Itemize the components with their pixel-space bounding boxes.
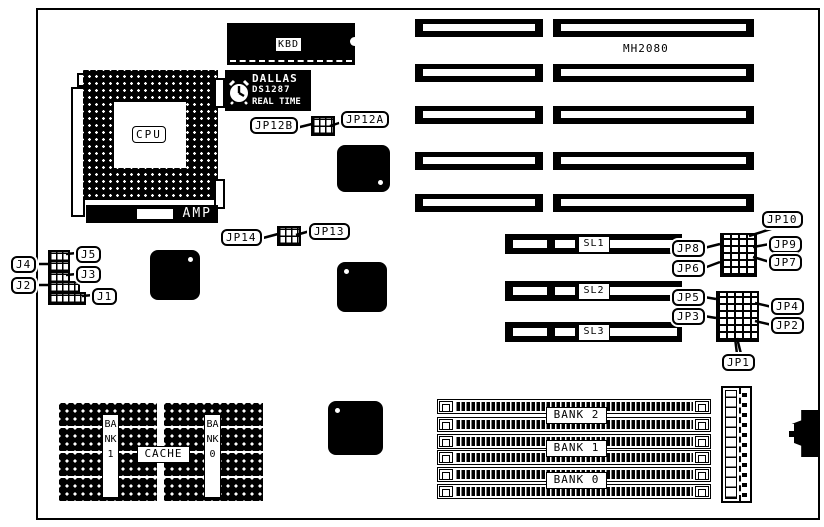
kbd-label: KBD [275, 37, 302, 52]
isa-slot [415, 19, 543, 37]
motherboard-diagram: CPU AMP KBD DALLAS DS1287 REAL TIME JP12… [0, 0, 824, 527]
din-notch [789, 437, 794, 444]
rtc-brand: DALLAS [252, 72, 301, 85]
kbd-notch [350, 37, 359, 46]
sl1-label: SL1 [578, 236, 610, 253]
amp-connector: AMP [86, 205, 218, 223]
cpu-socket: CPU [83, 70, 218, 200]
pin1-dot [378, 180, 383, 185]
rtc-type: REAL TIME [252, 96, 301, 108]
pin1-dot [335, 408, 340, 413]
sl2-label: SL2 [578, 283, 610, 300]
pin1-dot [188, 257, 193, 262]
jp9-label: JP9 [769, 236, 802, 253]
isa-slot [553, 19, 754, 37]
isa-slot [415, 106, 543, 124]
sl1-slot: SL1 [505, 234, 682, 254]
jumper-block-lower [716, 291, 759, 342]
cache-bank1-label: BANK1 [102, 414, 119, 498]
sl2-slot: SL2 [505, 281, 682, 301]
kbd-pin-row [230, 60, 352, 62]
qfp-chip-left [150, 250, 200, 300]
isa-slot [553, 64, 754, 82]
jp14-label: JP14 [221, 229, 262, 246]
jp8-label: JP8 [672, 240, 705, 257]
j2-label: J2 [11, 277, 36, 294]
amp-key [137, 209, 173, 219]
jp12a-label: JP12A [341, 111, 389, 128]
jp6-label: JP6 [672, 260, 705, 277]
qfp-chip-middle [337, 262, 387, 312]
rtc-chip: DALLAS DS1287 REAL TIME [225, 70, 311, 111]
isa-slot [553, 106, 754, 124]
amp-label: AMP [183, 206, 212, 221]
jp1-label: JP1 [722, 354, 755, 371]
clock-icon [228, 77, 250, 105]
j1-jumper-block [48, 292, 86, 305]
sl3-slot: SL3 [505, 322, 682, 342]
isa-slot [553, 152, 754, 170]
qfp-chip-upper [337, 145, 390, 192]
bank2-label: BANK 2 [546, 407, 607, 424]
jp10-label: JP10 [762, 211, 803, 228]
jp13-jumper-block [277, 226, 301, 246]
cpu-socket-tab-right-upper [214, 78, 225, 108]
j4-label: J4 [11, 256, 36, 273]
cache-bank0-label: BANK0 [204, 414, 221, 498]
j5-label: J5 [76, 246, 101, 263]
jp7-label: JP7 [769, 254, 802, 271]
rtc-part: DS1287 [252, 85, 301, 96]
isa-slot [553, 194, 754, 212]
isa-slot [415, 64, 543, 82]
isa-slot [415, 152, 543, 170]
jumper-block-upper [720, 233, 757, 277]
mh2080-label: MH2080 [623, 42, 669, 55]
bank1-label: BANK 1 [546, 440, 607, 457]
jp3-label: JP3 [672, 308, 705, 325]
jp12-jumper-block [311, 116, 335, 136]
isa-slot [415, 194, 543, 212]
qfp-chip-bottom [328, 401, 383, 455]
keyboard-connector: KBD [227, 23, 355, 65]
pin1-dot [344, 269, 349, 274]
jp2-label: JP2 [771, 317, 804, 334]
bank0-label: BANK 0 [546, 472, 607, 489]
cpu-label: CPU [132, 126, 166, 143]
jp12b-label: JP12B [250, 117, 298, 134]
sl3-label: SL3 [578, 324, 610, 341]
rtc-text: DALLAS DS1287 REAL TIME [252, 72, 301, 108]
din-notch [789, 424, 794, 431]
cache-label: CACHE [137, 446, 190, 463]
jp13-label: JP13 [309, 223, 350, 240]
j3-label: J3 [76, 266, 101, 283]
j1-label: J1 [92, 288, 117, 305]
jp5-label: JP5 [672, 289, 705, 306]
power-connector [721, 386, 752, 503]
jp4-label: JP4 [771, 298, 804, 315]
